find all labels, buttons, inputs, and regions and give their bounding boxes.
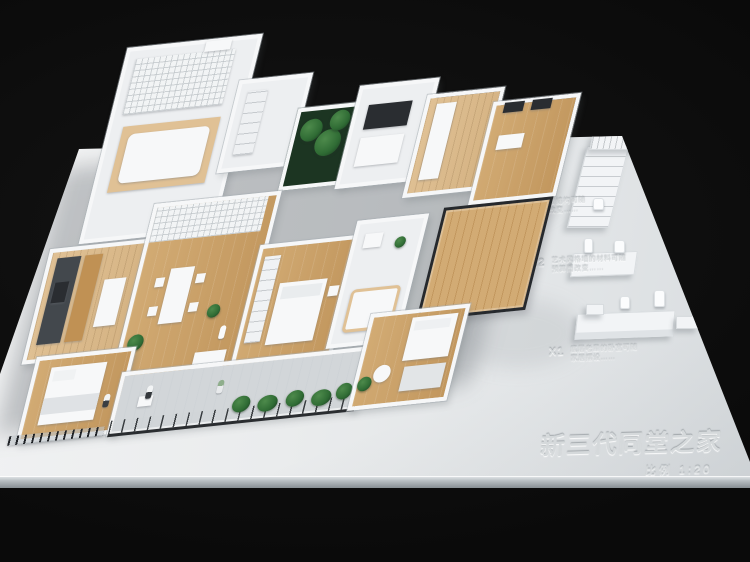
bed	[37, 362, 107, 426]
loft-rail-block	[589, 134, 640, 150]
wood-platform	[354, 133, 405, 167]
desk	[495, 133, 524, 150]
callout-x1: X1 底层老辈的卧室可随 家居摆设……	[549, 343, 639, 364]
mini-figure	[654, 290, 665, 307]
dark-headboard	[363, 100, 413, 129]
callout-x2-caption: 艺术风格墙的材料可随 预算而改变……	[551, 254, 627, 275]
callout-x1-label: X1	[549, 346, 565, 359]
window-opening	[503, 101, 525, 113]
dining-chair	[154, 277, 165, 287]
window-opening	[530, 98, 552, 110]
pillows	[280, 283, 323, 300]
side-table-block	[676, 316, 698, 329]
bed	[265, 278, 328, 345]
cooktop	[50, 281, 69, 303]
shower-area	[123, 49, 236, 115]
pillows	[52, 369, 76, 382]
dining-table	[157, 266, 195, 324]
bathtub-surround	[107, 117, 221, 193]
kitchen-island	[93, 277, 127, 327]
loft-tower-block	[567, 146, 629, 228]
mini-figure	[593, 198, 604, 210]
mini-figure	[218, 325, 227, 339]
model-photo-scene: X3 小阁楼结构可随 需求改变…… X2 艺术风格墙的材料可随 预算而改变…… …	[0, 0, 750, 562]
bed	[402, 313, 459, 361]
closet	[418, 102, 457, 181]
mini-figure-standing	[216, 380, 225, 394]
nameplate: 新三代同堂之家 比例 1:20	[538, 422, 724, 482]
callout-x1-caption-line2: 家居摆设……	[571, 354, 616, 363]
pillow-block	[586, 304, 604, 315]
apartment-model	[3, 98, 572, 439]
side-table	[327, 285, 340, 296]
callout-x1-caption-line1: 底层老辈的卧室可随	[570, 344, 638, 353]
sink	[362, 232, 384, 248]
rug	[398, 362, 446, 391]
blanket	[40, 393, 100, 415]
mini-figure	[620, 296, 630, 309]
potted-plant	[205, 304, 221, 319]
mini-figure	[584, 238, 593, 253]
base-front-edge	[0, 477, 750, 488]
mini-figure	[614, 240, 625, 253]
dining-chair	[188, 302, 199, 312]
callout-x2-caption-line1: 艺术风格墙的材料可随	[551, 255, 626, 265]
potted-plant	[356, 376, 374, 392]
bathtub	[117, 126, 211, 184]
callout-x1-caption: 底层老辈的卧室可随 家居摆设……	[570, 343, 638, 363]
pillows	[413, 318, 451, 331]
mini-figure	[102, 394, 111, 408]
lounge-chair	[371, 364, 392, 383]
potted-plant	[393, 236, 407, 249]
dining-chair	[147, 306, 158, 316]
tiled-floor	[149, 196, 269, 243]
project-title: 新三代同堂之家	[539, 422, 724, 462]
storage-shelves	[232, 89, 268, 155]
callout-x2: X2 艺术风格墙的材料可随 预算而改变……	[530, 254, 627, 275]
callout-x2-caption-line2: 预算而改变……	[552, 265, 605, 274]
dining-chair	[195, 273, 206, 283]
